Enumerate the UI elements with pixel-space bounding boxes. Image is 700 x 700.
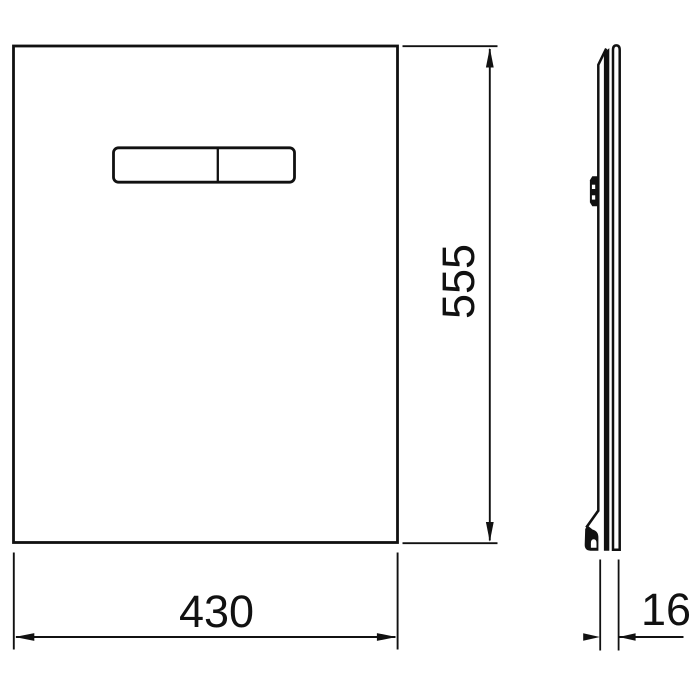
side-view xyxy=(585,45,620,550)
depth-dimension-label: 16 xyxy=(641,584,691,635)
width-arrow-left-icon xyxy=(15,633,35,641)
width-dimension-label: 430 xyxy=(179,586,254,637)
side-view-clip xyxy=(590,176,598,206)
width-arrow-right-icon xyxy=(377,633,397,641)
dimension-drawing-canvas: 555 430 16 xyxy=(0,0,700,700)
height-dimension: 555 xyxy=(403,46,498,543)
side-view-clip-hole-bottom xyxy=(592,195,595,199)
side-view-clip-hole-top xyxy=(592,185,595,189)
front-view-plate-outline xyxy=(14,46,398,543)
depth-arrow-right-icon xyxy=(583,633,600,640)
depth-arrow-left-icon xyxy=(619,633,636,640)
side-view-foot-notch xyxy=(591,539,597,547)
side-view-foot-diagonal xyxy=(586,511,598,528)
dimension-drawing-page: 555 430 16 xyxy=(0,0,700,700)
front-view xyxy=(14,46,398,543)
height-arrow-down-icon xyxy=(486,522,494,542)
side-view-mid-band xyxy=(604,48,609,551)
width-dimension: 430 xyxy=(14,553,398,650)
side-view-back-bar xyxy=(613,45,620,549)
flush-button-outline xyxy=(114,148,295,182)
depth-dimension: 16 xyxy=(583,560,691,651)
height-arrow-up-icon xyxy=(486,48,494,68)
height-dimension-label: 555 xyxy=(433,244,484,319)
